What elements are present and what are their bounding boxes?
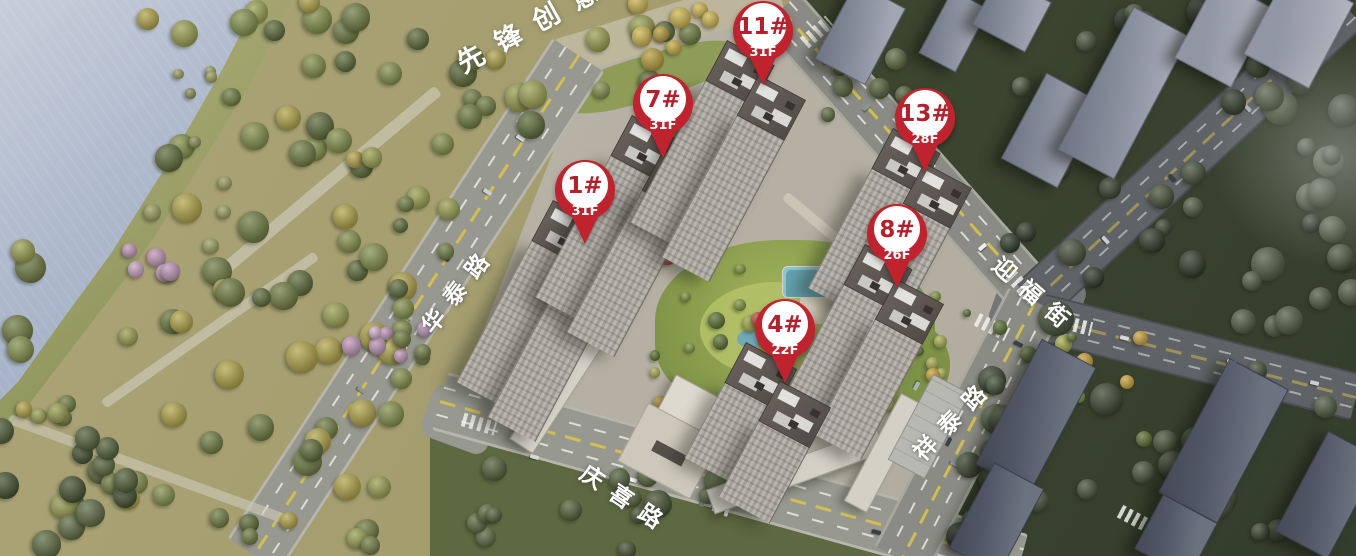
- tree: [1058, 239, 1085, 266]
- tree: [1328, 94, 1356, 127]
- building-marker-11[interactable]: 11# 31F: [730, 0, 796, 89]
- tree: [393, 298, 414, 319]
- tree: [248, 414, 274, 440]
- tree: [338, 230, 361, 253]
- building-marker-8[interactable]: 8# 26F: [864, 202, 930, 292]
- tree: [11, 239, 35, 263]
- tree: [276, 105, 302, 131]
- tree: [241, 122, 269, 150]
- svg-text:7#: 7#: [645, 87, 680, 113]
- tree: [185, 88, 196, 99]
- tree: [1327, 244, 1354, 271]
- tree: [560, 499, 582, 521]
- map-pin-icon: 7# 31F: [630, 72, 696, 162]
- tree: [342, 3, 370, 31]
- tree: [122, 243, 137, 258]
- tree: [641, 48, 664, 71]
- tree: [378, 401, 405, 428]
- tree: [934, 335, 947, 348]
- tree: [993, 320, 1007, 334]
- tree: [734, 299, 746, 311]
- building-marker-4[interactable]: 4# 22F: [752, 297, 818, 387]
- tree: [1302, 214, 1321, 233]
- tree: [59, 476, 86, 503]
- tree: [1314, 395, 1337, 418]
- map-pin-icon: 8# 26F: [864, 202, 930, 292]
- tree: [222, 88, 241, 107]
- tree: [391, 368, 412, 389]
- tree: [394, 349, 408, 363]
- tree: [286, 341, 318, 373]
- tree: [119, 327, 138, 346]
- tree: [1077, 479, 1098, 500]
- building-marker-1[interactable]: 1# 31F: [552, 158, 618, 248]
- tree: [326, 128, 352, 154]
- entrance-monument: [651, 440, 687, 467]
- tree: [334, 473, 361, 500]
- tree: [458, 104, 483, 129]
- tree: [264, 20, 285, 41]
- tree: [1297, 138, 1315, 156]
- tree: [517, 111, 545, 139]
- tree: [289, 140, 316, 167]
- svg-text:11#: 11#: [737, 14, 788, 40]
- tree: [432, 133, 455, 156]
- map-pin-icon: 13# 28F: [892, 86, 958, 176]
- tree: [216, 278, 245, 307]
- tree: [407, 28, 429, 50]
- tree: [618, 541, 637, 556]
- svg-text:31F: 31F: [650, 118, 677, 133]
- tree: [172, 193, 202, 223]
- tree: [1179, 250, 1207, 278]
- tree: [361, 536, 380, 555]
- tree: [215, 360, 244, 389]
- tree: [323, 302, 349, 328]
- tree: [1307, 178, 1338, 209]
- tree: [632, 26, 652, 46]
- tree: [128, 261, 145, 278]
- svg-text:28F: 28F: [912, 132, 939, 147]
- tree: [206, 71, 217, 82]
- tree: [833, 76, 854, 97]
- tree: [1221, 89, 1247, 115]
- tree: [217, 205, 231, 219]
- tree: [593, 81, 610, 98]
- tree: [218, 176, 232, 190]
- tree: [1139, 228, 1165, 254]
- svg-text:22F: 22F: [772, 343, 799, 358]
- tree: [210, 508, 230, 528]
- tree: [0, 472, 19, 499]
- tree: [75, 426, 100, 451]
- tree: [1149, 184, 1174, 209]
- tree: [238, 211, 270, 243]
- tree: [153, 484, 175, 506]
- tree: [360, 243, 388, 271]
- tree: [393, 218, 408, 233]
- svg-text:1#: 1#: [567, 173, 602, 199]
- tree: [713, 334, 729, 350]
- tree: [1076, 31, 1097, 52]
- tree: [342, 336, 362, 356]
- tree: [1275, 306, 1304, 335]
- tree: [586, 27, 611, 52]
- map-pin-icon: 4# 22F: [752, 297, 818, 387]
- svg-text:13#: 13#: [899, 101, 950, 127]
- tree: [368, 476, 390, 498]
- tree: [653, 26, 669, 42]
- tree: [1136, 431, 1152, 447]
- tree: [650, 350, 660, 360]
- tree: [161, 402, 187, 428]
- tree: [1133, 331, 1148, 346]
- tree: [32, 530, 61, 556]
- tree: [333, 204, 358, 229]
- tree: [398, 196, 414, 212]
- tree: [242, 528, 259, 545]
- tree: [16, 401, 32, 417]
- tree: [300, 439, 323, 462]
- tree: [203, 238, 219, 254]
- svg-text:31F: 31F: [750, 45, 777, 60]
- tree: [1309, 287, 1332, 310]
- tree: [1181, 161, 1206, 186]
- tree: [885, 48, 908, 71]
- tree: [821, 107, 835, 121]
- svg-text:4#: 4#: [767, 312, 802, 338]
- tree: [302, 54, 326, 78]
- tree: [315, 337, 343, 365]
- tree: [438, 243, 455, 260]
- tree: [1090, 383, 1123, 416]
- svg-text:26F: 26F: [884, 248, 911, 263]
- tree: [702, 11, 719, 28]
- tree: [170, 310, 193, 333]
- tree: [1322, 145, 1342, 165]
- tree: [1183, 197, 1203, 217]
- tree: [369, 337, 386, 354]
- tree: [252, 288, 271, 307]
- tree: [1319, 216, 1346, 243]
- tree: [76, 499, 104, 527]
- tree: [1099, 177, 1121, 199]
- svg-text:31F: 31F: [572, 204, 599, 219]
- tree: [155, 144, 183, 172]
- tree: [114, 468, 138, 492]
- tree: [362, 147, 383, 168]
- tree: [269, 282, 298, 311]
- tree: [161, 262, 180, 281]
- tree: [144, 204, 161, 221]
- tree: [335, 51, 356, 72]
- tree: [31, 408, 47, 424]
- building-marker-13[interactable]: 13# 28F: [892, 86, 958, 176]
- building-marker-7[interactable]: 7# 31F: [630, 72, 696, 162]
- tree: [379, 62, 402, 85]
- tree: [666, 40, 681, 55]
- tree: [519, 80, 548, 109]
- tree: [189, 136, 201, 148]
- tree: [349, 399, 377, 427]
- map-pin-icon: 1# 31F: [552, 158, 618, 248]
- tree: [200, 431, 223, 454]
- map-pin-icon: 11# 31F: [730, 0, 796, 89]
- svg-text:8#: 8#: [879, 217, 914, 243]
- tree: [1242, 271, 1262, 291]
- tree: [230, 9, 257, 36]
- tree: [1083, 267, 1104, 288]
- tree: [735, 264, 746, 275]
- aerial-site-plan: 先锋创意 华泰路 庆喜路 祥泰路 迎福街 1# 31F 7# 31F 11# 3…: [0, 0, 1356, 556]
